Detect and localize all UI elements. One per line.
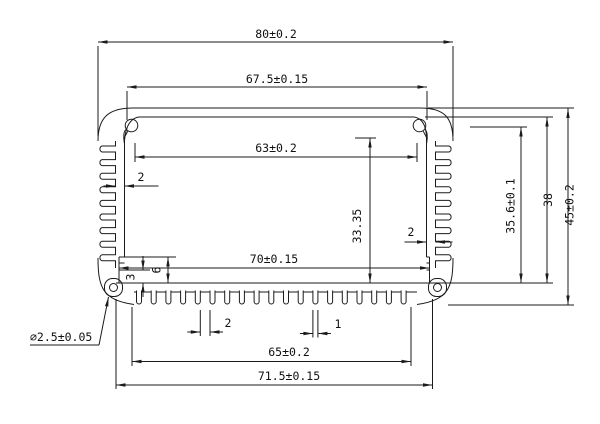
dim-label: 70±0.15	[250, 252, 298, 266]
dim-label: 2	[225, 316, 232, 330]
dim-label: 67.5±0.15	[246, 72, 308, 86]
dim-label: 80±0.2	[255, 27, 297, 41]
dim-label: 6	[150, 266, 164, 273]
dim-label: 1	[335, 317, 342, 331]
dim-label: 63±0.2	[255, 141, 297, 155]
dim-label: 2	[138, 170, 145, 184]
dim-label: 35.6±0.1	[504, 178, 518, 233]
drawing-svg: 80±0.267.5±0.1563±0.270±0.1565±0.271.5±0…	[0, 0, 600, 424]
dim-label: 71.5±0.15	[258, 369, 320, 383]
dim-label: 3	[124, 273, 138, 280]
dim-label: 2	[408, 225, 415, 239]
hole-callout-label: ⌀2.5±0.05	[30, 330, 92, 344]
dim-label: 45±0.2	[563, 184, 577, 226]
dim-label: 38	[541, 193, 555, 207]
dim-label: 65±0.2	[268, 345, 310, 359]
drawing-canvas: { "drawing": { "kind": "technical-dimens…	[0, 0, 600, 424]
dim-label: 33.35	[350, 209, 364, 244]
